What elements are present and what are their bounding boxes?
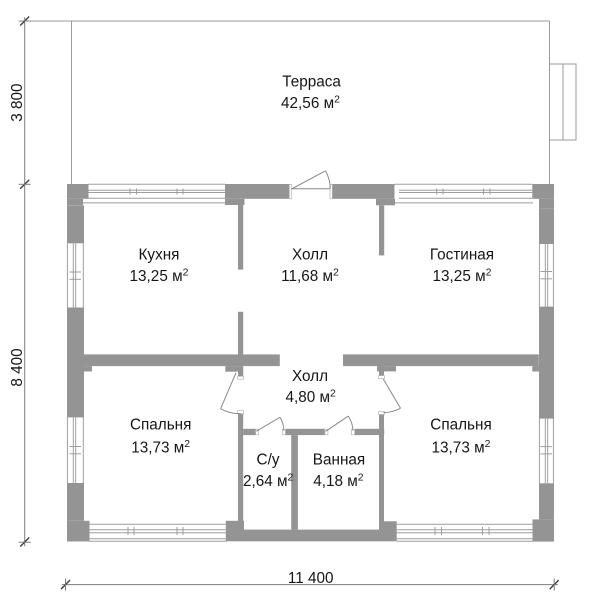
svg-text:Спальня: Спальня [430, 417, 491, 434]
svg-text:13,73 м2: 13,73 м2 [432, 438, 491, 457]
svg-text:С/у: С/у [257, 452, 280, 469]
svg-text:42,56 м2: 42,56 м2 [281, 93, 340, 112]
svg-text:13,25 м2: 13,25 м2 [130, 267, 189, 286]
svg-text:Гостиная: Гостиная [430, 247, 494, 264]
svg-text:13,73 м2: 13,73 м2 [131, 438, 190, 457]
svg-text:11 400: 11 400 [288, 570, 334, 587]
svg-text:Холл: Холл [292, 247, 328, 264]
svg-text:Кухня: Кухня [139, 247, 180, 264]
svg-text:4,80 м2: 4,80 м2 [286, 388, 337, 407]
svg-text:4,18 м2: 4,18 м2 [313, 471, 364, 490]
svg-text:Спальня: Спальня [130, 417, 191, 434]
svg-text:11,68 м2: 11,68 м2 [281, 267, 339, 286]
svg-text:Ванная: Ванная [313, 452, 365, 469]
svg-text:3 800: 3 800 [9, 83, 26, 121]
svg-text:13,25 м2: 13,25 м2 [433, 267, 492, 286]
svg-text:8 400: 8 400 [9, 348, 26, 386]
svg-text:2,64 м2: 2,64 м2 [243, 471, 294, 490]
svg-text:Холл: Холл [292, 368, 328, 385]
svg-text:Терраса: Терраса [282, 73, 341, 90]
